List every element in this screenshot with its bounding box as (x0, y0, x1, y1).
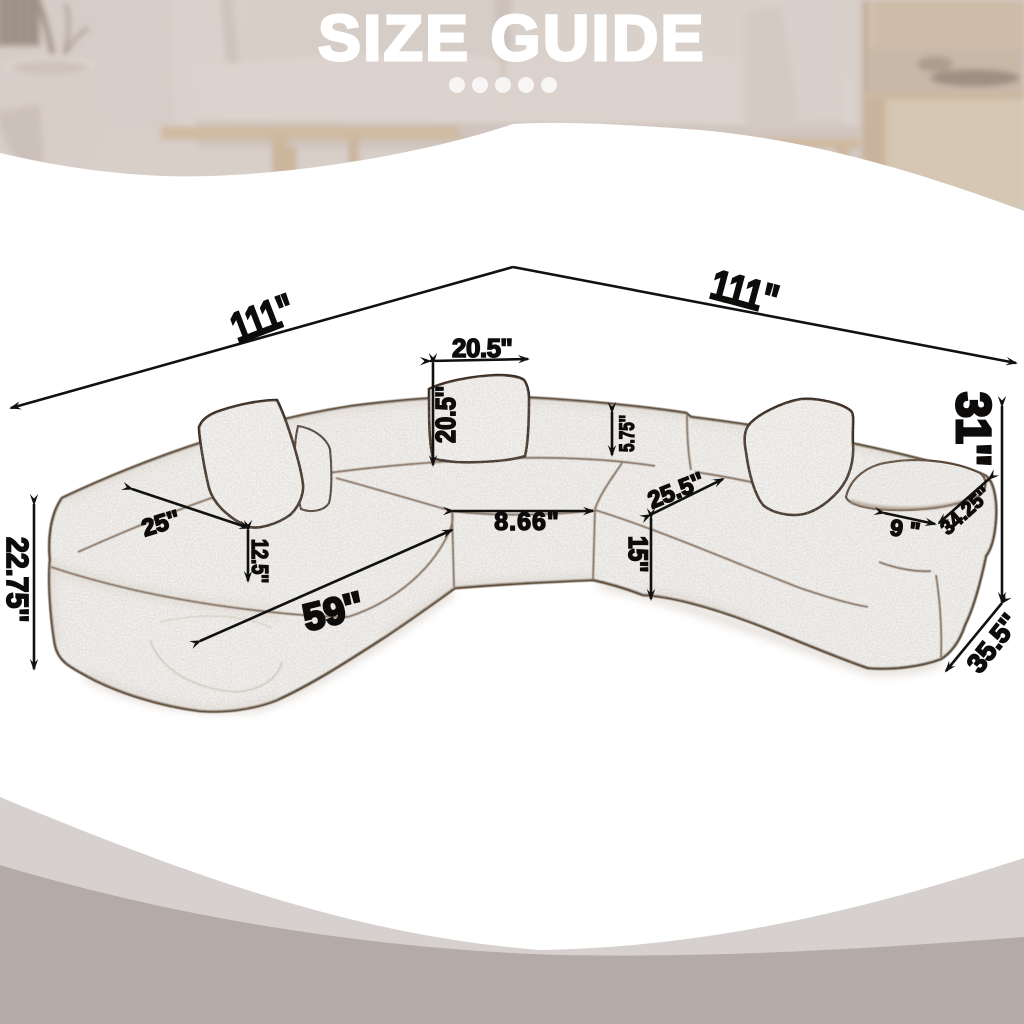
svg-text:22.75'': 22.75'' (0, 537, 35, 622)
svg-text:12.5'': 12.5'' (247, 539, 273, 583)
svg-text:20.5'': 20.5'' (452, 333, 512, 363)
svg-text:20.5'': 20.5'' (430, 386, 461, 443)
svg-text:31'': 31'' (946, 392, 999, 466)
svg-text:SIZE GUIDE: SIZE GUIDE (318, 2, 706, 74)
svg-text:8.66": 8.66" (494, 508, 560, 536)
svg-text:9 ": 9 " (888, 514, 921, 544)
svg-text:15'': 15'' (623, 536, 653, 572)
svg-text:5.75'': 5.75'' (616, 415, 639, 452)
